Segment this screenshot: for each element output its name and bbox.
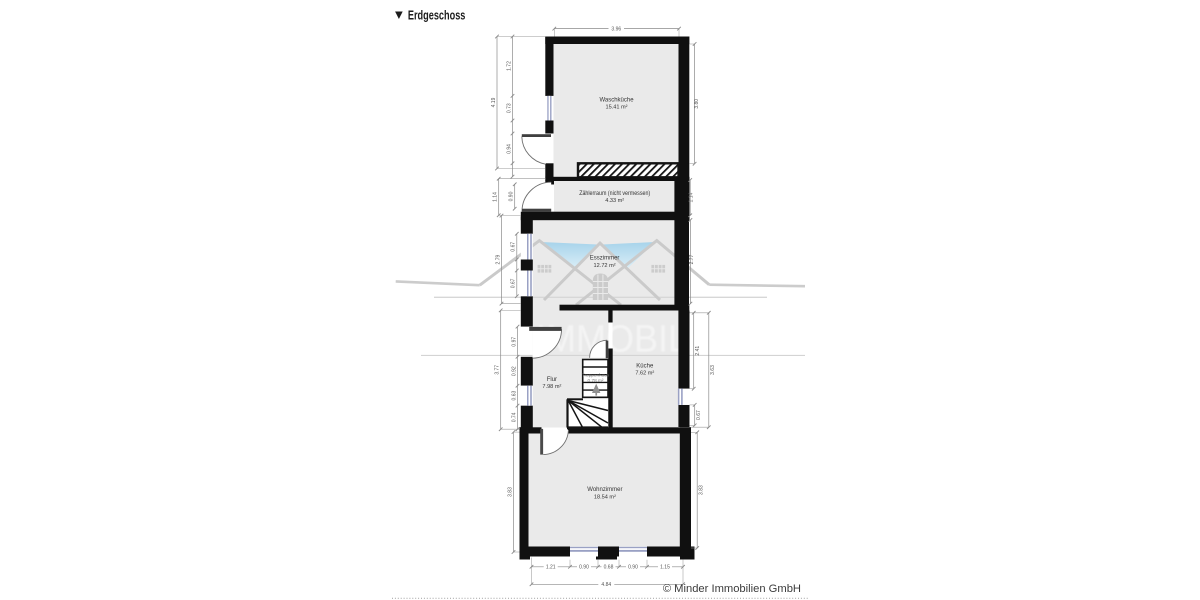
svg-text:12.72 m²: 12.72 m² (594, 263, 616, 269)
svg-text:3.83: 3.83 (698, 485, 704, 495)
svg-text:3.83: 3.83 (507, 487, 513, 497)
svg-text:3.80: 3.80 (694, 99, 700, 109)
svg-text:0.90: 0.90 (628, 565, 638, 571)
svg-text:3.96: 3.96 (611, 27, 621, 33)
svg-text:Zählerraum (nicht vermessen): Zählerraum (nicht vermessen) (579, 191, 650, 197)
svg-text:7.62 m²: 7.62 m² (635, 371, 654, 377)
svg-text:3.63: 3.63 (710, 365, 716, 375)
svg-text:15.41 m²: 15.41 m² (605, 105, 627, 111)
svg-text:0.73: 0.73 (506, 103, 512, 113)
svg-text:1.14: 1.14 (493, 192, 499, 202)
svg-text:Esszimmer: Esszimmer (590, 255, 620, 261)
svg-text:1.21: 1.21 (546, 565, 556, 571)
svg-text:0.90: 0.90 (509, 191, 515, 201)
svg-text:0.78 m²: 0.78 m² (588, 378, 604, 383)
svg-text:0.67: 0.67 (511, 242, 517, 252)
svg-text:0.68: 0.68 (604, 565, 614, 571)
svg-text:4.84: 4.84 (601, 582, 611, 588)
svg-text:4.19: 4.19 (491, 97, 497, 107)
svg-text:0.90: 0.90 (579, 565, 589, 571)
svg-text:© Minder Immobilien GmbH: © Minder Immobilien GmbH (663, 583, 801, 595)
svg-text:0.97: 0.97 (511, 337, 517, 347)
svg-text:2.79: 2.79 (495, 255, 501, 265)
svg-text:7.98 m²: 7.98 m² (542, 384, 561, 390)
svg-text:Waschküche: Waschküche (599, 97, 634, 103)
svg-text:3.77: 3.77 (495, 365, 501, 375)
svg-text:4.33 m²: 4.33 m² (605, 198, 624, 204)
svg-text:0.94: 0.94 (506, 144, 512, 154)
svg-text:2.77: 2.77 (689, 254, 695, 264)
svg-text:0.74: 0.74 (511, 412, 517, 422)
svg-text:0.67: 0.67 (696, 410, 702, 420)
svg-text:0.67: 0.67 (511, 278, 517, 288)
svg-text:Erdgeschoss: Erdgeschoss (408, 8, 466, 22)
svg-text:0.63: 0.63 (511, 391, 517, 401)
svg-text:Flur: Flur (547, 377, 557, 383)
svg-text:Wohnzimmer: Wohnzimmer (587, 487, 622, 493)
svg-text:1.72: 1.72 (506, 61, 512, 71)
svg-text:1.15: 1.15 (660, 565, 670, 571)
svg-text:0.92: 0.92 (511, 366, 517, 376)
svg-text:1.14: 1.14 (689, 193, 695, 203)
svg-text:Küche: Küche (636, 364, 654, 370)
svg-text:2.41: 2.41 (695, 346, 701, 356)
svg-text:Treppenhaus: Treppenhaus (582, 372, 610, 377)
svg-text:18.54 m²: 18.54 m² (594, 494, 616, 500)
